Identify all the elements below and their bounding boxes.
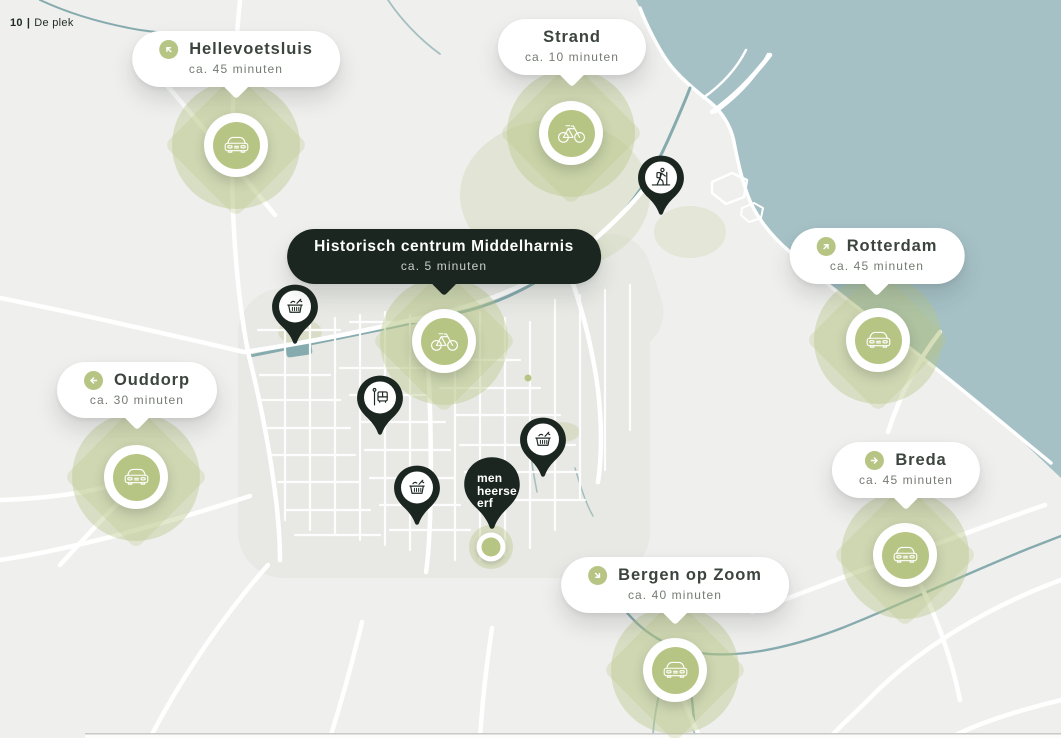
- car-front-icon: [652, 647, 699, 694]
- marker-badge: [204, 113, 268, 177]
- brand-line-1: men: [477, 472, 517, 485]
- travel-time: ca. 5 minuten: [314, 259, 574, 273]
- destination-name: Rotterdam: [847, 237, 938, 256]
- tooltip-historisch-centrum: Historisch centrum Middelharnis ca. 5 mi…: [287, 229, 601, 284]
- destination-name: Historisch centrum Middelharnis: [314, 238, 574, 256]
- destination-name: Bergen op Zoom: [618, 566, 762, 585]
- page-number: 10: [10, 17, 23, 29]
- brand-wordmark: men heerse erf: [477, 472, 517, 510]
- travel-time: ca. 45 minuten: [859, 473, 953, 487]
- brochure-map-page: 10|De plek: [0, 0, 1061, 738]
- marker-badge: [643, 638, 707, 702]
- car-front-icon: [882, 532, 929, 579]
- car-front-icon: [855, 317, 902, 364]
- pin-bus-stop: [354, 374, 406, 438]
- direction-southeast-icon: [588, 566, 607, 585]
- page-header: 10|De plek: [10, 17, 74, 29]
- tooltip-rotterdam: Rotterdam ca. 45 minuten: [790, 228, 965, 284]
- direction-west-icon: [84, 371, 103, 390]
- direction-northwest-icon: [159, 40, 178, 59]
- pin-men-heerse-erf: men heerse erf: [461, 455, 523, 533]
- marker-badge: [873, 523, 937, 587]
- marker-badge: [412, 309, 476, 373]
- marker-badge: [104, 445, 168, 509]
- destination-name: Ouddorp: [114, 371, 190, 390]
- direction-northeast-icon: [817, 237, 836, 256]
- bicycle-icon: [421, 318, 468, 365]
- travel-time: ca. 40 minuten: [588, 588, 762, 602]
- tooltip-ouddorp: Ouddorp ca. 30 minuten: [57, 362, 217, 418]
- marker-badge: [846, 308, 910, 372]
- tooltip-breda: Breda ca. 45 minuten: [832, 442, 980, 498]
- bicycle-icon: [548, 110, 595, 157]
- destination-name: Strand: [543, 28, 601, 47]
- dot-core: [482, 538, 501, 557]
- destination-name: Hellevoetsluis: [189, 40, 313, 59]
- travel-time: ca. 45 minuten: [817, 259, 938, 273]
- brand-line-3: erf: [477, 497, 517, 510]
- travel-time: ca. 10 minuten: [525, 50, 619, 64]
- travel-time: ca. 45 minuten: [159, 62, 313, 76]
- car-front-icon: [213, 122, 260, 169]
- car-front-icon: [113, 454, 160, 501]
- tooltip-hellevoetsluis: Hellevoetsluis ca. 45 minuten: [132, 31, 340, 87]
- marker-badge: [539, 101, 603, 165]
- pin-supermarket-1: [269, 283, 321, 347]
- section-title: De plek: [34, 17, 73, 29]
- page-divider: |: [27, 17, 30, 29]
- destination-name: Breda: [895, 451, 946, 470]
- direction-east-icon: [865, 451, 884, 470]
- tooltip-bergen-op-zoom: Bergen op Zoom ca. 40 minuten: [561, 557, 789, 613]
- pin-supermarket-2: [517, 416, 569, 480]
- tooltip-strand: Strand ca. 10 minuten: [498, 19, 646, 75]
- pin-supermarket-3: [391, 464, 443, 528]
- pin-hiking-trail: [635, 154, 687, 218]
- travel-time: ca. 30 minuten: [84, 393, 190, 407]
